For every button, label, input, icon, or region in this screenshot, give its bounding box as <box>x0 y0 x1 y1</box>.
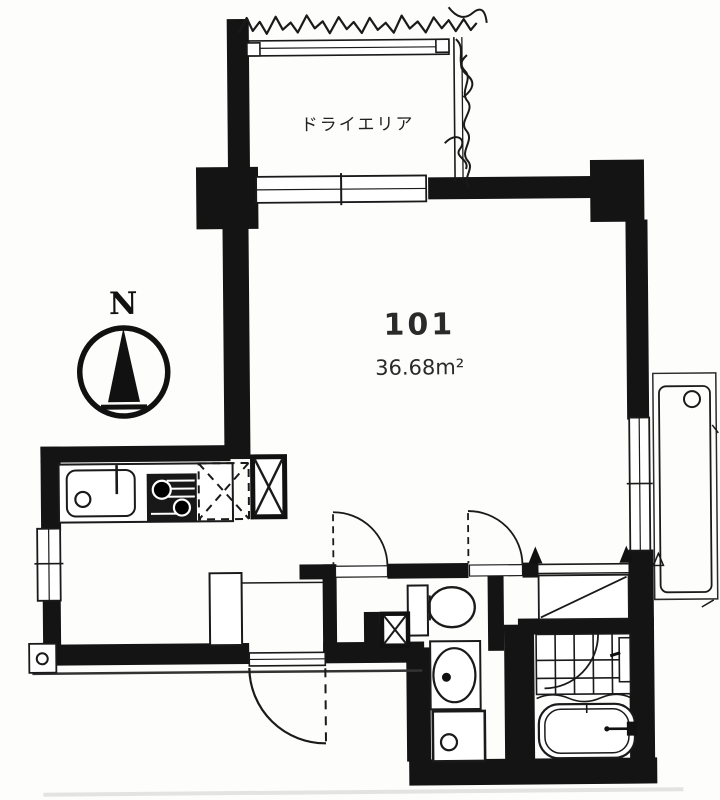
wall-column-topleft <box>196 167 259 230</box>
basin-drain-icon <box>442 673 451 682</box>
burner-icon <box>174 499 190 515</box>
tile-line <box>536 678 630 679</box>
toilet-icon <box>429 587 475 627</box>
door-threshold <box>469 565 522 576</box>
tile-line <box>612 634 613 694</box>
window-end-box <box>436 39 449 52</box>
tub-faucet-icon <box>627 722 637 736</box>
dryarea-right-line <box>454 37 455 181</box>
window-end-box <box>247 43 260 56</box>
gas-stove-icon <box>147 473 197 521</box>
tile-area <box>536 634 631 695</box>
wall-wash-bath-divider <box>504 624 535 760</box>
compass-north-icon <box>79 328 168 417</box>
compass-n-label: N <box>101 286 145 322</box>
wall-toilet-left <box>322 564 337 656</box>
ground-hatch-icon <box>239 14 477 34</box>
bathtub-icon <box>539 704 637 759</box>
unit-area-label: 36.68m² <box>330 355 510 381</box>
door-swing-arc <box>333 512 387 566</box>
shower-panel-icon <box>619 638 630 682</box>
wall-left-main <box>222 225 250 459</box>
toilet-room <box>382 585 476 646</box>
toilet-tank-cabinet <box>408 585 428 635</box>
shower-tile-floor-icon <box>536 634 631 695</box>
door-open-position <box>325 668 326 742</box>
wall-right-upper <box>625 219 649 419</box>
wall-column-topright <box>590 160 645 222</box>
toilet-door-icon <box>333 512 388 577</box>
tub-deck-line <box>537 694 631 702</box>
compass-needle <box>107 328 140 402</box>
tile-line <box>536 660 630 661</box>
corner-drain-box <box>29 644 56 673</box>
shoe-cabinet-icon <box>210 573 243 645</box>
wall-toilet-right <box>488 575 505 651</box>
closet-track-line <box>538 564 628 565</box>
pad-tick <box>702 600 714 607</box>
tub-faucet-icon <box>604 726 609 731</box>
tile-line <box>574 634 575 694</box>
pad-inner <box>659 386 712 592</box>
tile-line <box>555 634 556 694</box>
closet-track-line <box>539 573 629 574</box>
entrance-step-line <box>242 582 324 583</box>
wall-kitchen-top <box>40 445 230 463</box>
washing-machine-pan-icon <box>433 711 485 761</box>
tile-line <box>593 634 594 694</box>
wall-bottom-left <box>43 643 249 666</box>
door-threshold-line <box>249 659 325 660</box>
dry-area <box>239 7 489 189</box>
floorplan-drawing: ドライエリア 101 36.68m² N <box>0 0 720 800</box>
wall-top <box>428 176 594 199</box>
washroom-door-icon <box>468 511 523 576</box>
washbasin-counter <box>430 641 481 709</box>
door-swing-arc <box>468 511 522 565</box>
pad-tick <box>712 425 718 433</box>
service-pad-icon <box>652 373 720 608</box>
door-swing-arc <box>249 667 326 744</box>
bathroom <box>536 634 637 759</box>
unit-number: 101 <box>329 307 509 344</box>
duct-shaft-icon <box>382 614 408 646</box>
washroom <box>430 641 485 761</box>
kitchen <box>59 457 286 523</box>
wall-outer-face-line <box>32 670 422 673</box>
wall-washroom-left <box>406 647 431 761</box>
window-midline <box>49 529 50 601</box>
dry-area-label: ドライエリア <box>287 109 427 135</box>
door-threshold <box>335 566 387 577</box>
marker-triangle-icon <box>528 546 542 563</box>
interior-doors <box>333 510 634 578</box>
pad-drain-icon <box>684 391 700 407</box>
duct-shaft-icon <box>252 457 285 517</box>
floorplan-scan: ドライエリア 101 36.68m² N <box>0 0 720 800</box>
closet-icon <box>539 575 629 620</box>
scan-streak <box>43 787 683 797</box>
wall-duct-stub <box>364 612 380 650</box>
burner-icon <box>153 481 171 499</box>
entrance-door-icon <box>249 652 326 744</box>
wall-sanitary-2 <box>387 563 468 579</box>
wall-sanitary-3 <box>522 562 538 577</box>
